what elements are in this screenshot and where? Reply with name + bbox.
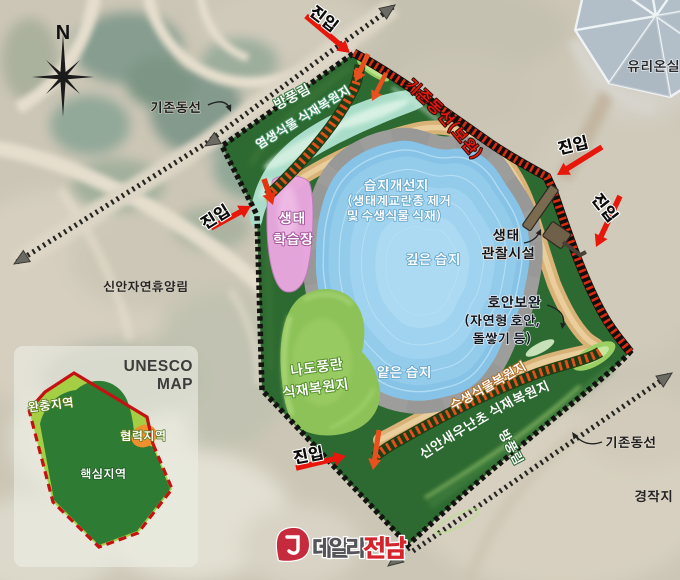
svg-text:UNESCO: UNESCO — [124, 358, 193, 375]
svg-text:MAP: MAP — [157, 376, 193, 393]
svg-text:N: N — [56, 22, 70, 44]
